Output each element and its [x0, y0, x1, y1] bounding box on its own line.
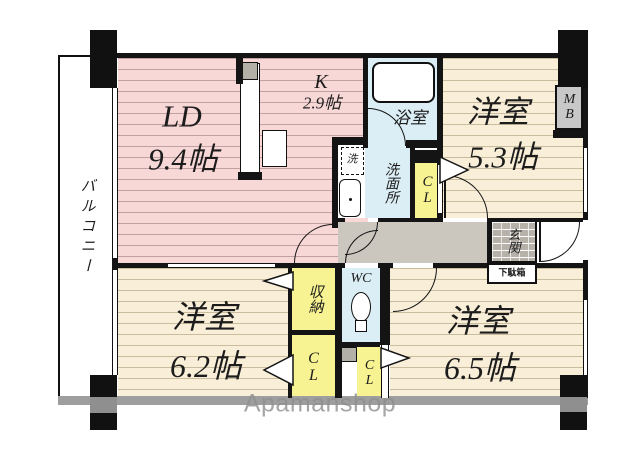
pipe-space	[340, 347, 357, 362]
floorplan: バルコニー LD 9.4帖 K 2.9帖 浴室 洗面所 洗 CL 洋室 5.3帖…	[0, 0, 640, 455]
wall-ld-bottom-2	[275, 263, 332, 268]
storage-label: 収納	[307, 284, 322, 314]
closet-upper-label: CL	[420, 174, 435, 206]
door-leaf-western-5-3	[444, 175, 446, 218]
sliding-door-ld-6-2	[168, 263, 275, 268]
wall-closet-5-3	[437, 53, 443, 165]
western-6-5-size: 6.5帖	[444, 352, 516, 384]
wall-closet-upper-top	[411, 150, 437, 163]
wall-center-mid	[335, 263, 342, 398]
ld-size: 9.4帖	[148, 144, 218, 175]
wall-corridor-top-1	[332, 218, 345, 222]
meter-box-label: MB	[562, 92, 576, 122]
wall-right-2	[583, 212, 588, 220]
toilet-tank-icon	[355, 320, 367, 332]
washroom-label: 洗面所	[383, 162, 397, 204]
wall-corridor-bottom-3	[433, 263, 490, 268]
wall-washarea-left	[332, 137, 338, 228]
door-leaf-entrance	[539, 222, 541, 262]
bathtub-icon	[372, 62, 435, 103]
shoe-box-label: 下駄箱	[498, 269, 525, 278]
wall-corridor-top-2	[378, 218, 443, 222]
wall-meterbox-bottom	[553, 130, 583, 138]
folding-door-closet-upper	[437, 165, 443, 213]
bath-label: 浴室	[393, 110, 427, 127]
outer-wall-top	[117, 53, 588, 58]
closet-lower-left-label: CL	[305, 350, 321, 384]
column-top-right	[558, 30, 588, 88]
kitchen-sink	[262, 130, 287, 167]
western-5-3-label: 洋室	[467, 97, 529, 128]
wc-label: WC	[351, 272, 372, 286]
window-right-lower	[583, 300, 588, 375]
western-6-5-label: 洋室	[446, 305, 510, 337]
western-6-2-size: 6.2帖	[170, 350, 242, 382]
laundry-label: 洗	[347, 155, 358, 166]
kitchen-label: K	[314, 72, 327, 92]
column-top-left	[90, 30, 117, 88]
wall-vestibule-bottom	[537, 263, 588, 268]
toilet-bowl-icon	[351, 292, 371, 322]
column-bottom-right-gray	[560, 397, 587, 412]
wall-storage-closet	[292, 330, 335, 335]
ld-label: LD	[162, 101, 202, 132]
western-6-2-label: 洋室	[172, 301, 236, 333]
wall-6-5-left	[380, 268, 390, 345]
balcony-label: バルコニー	[79, 178, 94, 278]
window-ld-balcony	[112, 88, 118, 258]
wall-bath-bottom	[406, 140, 437, 148]
kitchen-duct	[242, 62, 258, 80]
entrance-step-edge	[487, 218, 490, 263]
washbasin-drain-dot	[349, 198, 352, 201]
kitchen-size: 2.9帖	[303, 95, 341, 112]
wall-wc-bottom	[342, 342, 380, 347]
entrance-label: 玄関	[507, 228, 520, 254]
watermark: Apamanshop	[244, 390, 396, 419]
wall-counter-bottom	[238, 172, 262, 180]
wall-kitchen-stub	[236, 58, 243, 84]
window-right-upper	[583, 148, 588, 212]
kitchen-counter	[240, 63, 260, 177]
closet-lower-right-label: CL	[362, 358, 376, 388]
window-6-2-balcony	[112, 270, 118, 375]
western-5-3-size: 5.3帖	[468, 142, 538, 173]
wall-ld-bottom-1	[112, 263, 168, 268]
column-bottom-left-gray	[90, 397, 117, 413]
